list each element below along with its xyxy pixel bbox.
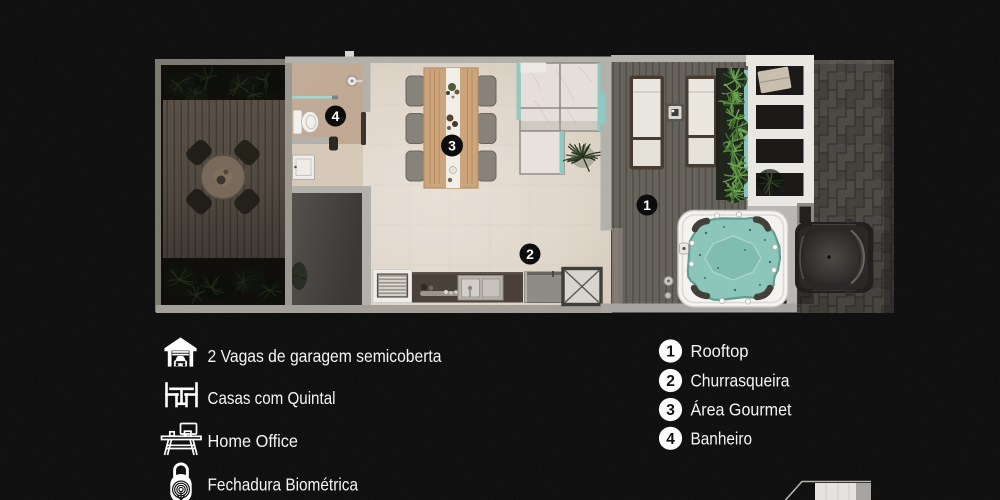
svg-text:4: 4 [666,431,675,448]
svg-text:Banheiro: Banheiro [691,428,753,448]
svg-text:Rooftop: Rooftop [691,341,749,361]
svg-text:3: 3 [448,137,456,153]
svg-text:Casas com Quintal: Casas com Quintal [208,388,336,408]
svg-text:1: 1 [643,197,651,213]
svg-text:Fechadura Biométrica: Fechadura Biométrica [208,475,359,495]
svg-text:2 Vagas de garagem semicoberta: 2 Vagas de garagem semicoberta [208,346,442,366]
svg-text:2: 2 [526,246,534,262]
svg-text:Área Gourmet: Área Gourmet [691,400,792,420]
svg-text:1: 1 [666,344,675,361]
svg-text:4: 4 [332,108,340,124]
svg-text:2: 2 [666,373,675,390]
svg-text:3: 3 [666,402,675,419]
svg-text:Home Office: Home Office [208,431,299,451]
svg-text:Churrasqueira: Churrasqueira [691,371,790,391]
